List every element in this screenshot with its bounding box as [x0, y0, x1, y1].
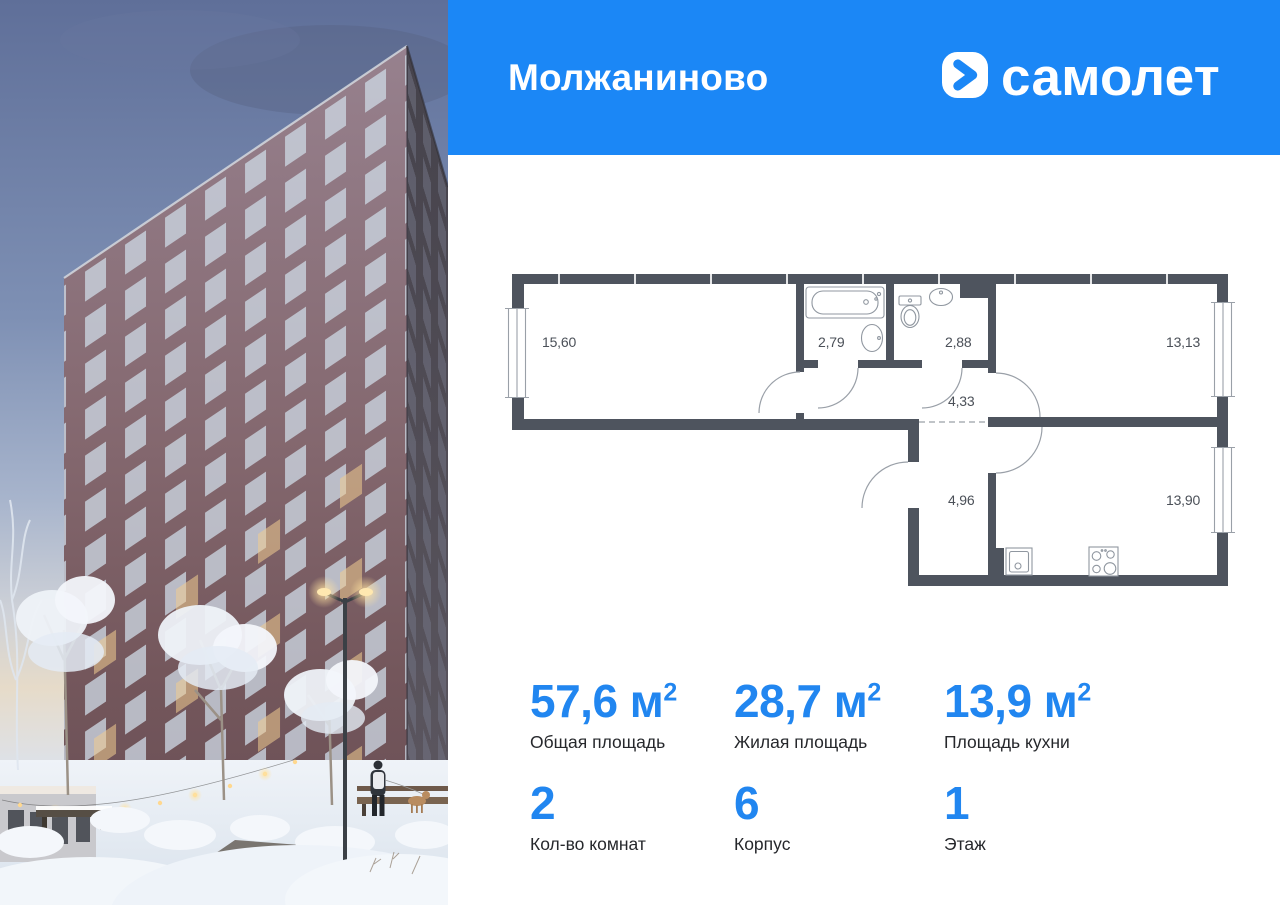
building-photo [0, 0, 448, 905]
stat-kitchen-area: 13,9 м2 Площадь кухни [944, 678, 1144, 753]
stove [1089, 547, 1118, 576]
stat-rooms: 2 Кол-во комнат [530, 780, 730, 855]
bathroom-sink [862, 325, 883, 352]
samolet-logo: самолет [942, 51, 1220, 104]
stat-living-area: 28,7 м2 Жилая площадь [734, 678, 934, 753]
stat-building: 6 Корпус [734, 780, 934, 855]
listing-card: Молжаниново самолет [0, 0, 1280, 905]
stat-rooms-value: 2 [530, 780, 730, 826]
stat-total-area-label: Общая площадь [530, 732, 730, 753]
kitchen-sink [1006, 548, 1032, 575]
building-photo-art [0, 0, 448, 905]
stat-living-area-label: Жилая площадь [734, 732, 934, 753]
header-banner: Молжаниново самолет [448, 0, 1280, 155]
stat-total-area: 57,6 м2 Общая площадь [530, 678, 730, 753]
stat-kitchen-area-label: Площадь кухни [944, 732, 1144, 753]
room-area-bedroom: 13,13 [1166, 334, 1200, 350]
walls [512, 274, 1228, 586]
stat-living-area-value: 28,7 м2 [734, 678, 934, 724]
stat-building-label: Корпус [734, 834, 934, 855]
room-area-kitchen: 13,90 [1166, 492, 1200, 508]
stat-building-value: 6 [734, 780, 934, 826]
samolet-logo-text: самолет [1001, 51, 1220, 104]
room-area-bathroom: 2,79 [818, 334, 845, 350]
bathtub [806, 287, 884, 318]
stat-floor: 1 Этаж [944, 780, 1144, 855]
room-area-living: 15,60 [542, 334, 576, 350]
stat-floor-label: Этаж [944, 834, 1144, 855]
room-area-corridor: 4,96 [948, 492, 975, 508]
project-title: Молжаниново [508, 57, 768, 99]
stat-rooms-label: Кол-во комнат [530, 834, 730, 855]
wc-sink [930, 289, 953, 306]
cloud [60, 10, 300, 70]
room-area-hallway: 4,33 [948, 393, 975, 409]
toilet [899, 296, 921, 328]
stat-kitchen-area-value: 13,9 м2 [944, 678, 1144, 724]
floor-plan: 15,60 2,79 2,88 13,13 4,33 4,96 13,90 [500, 265, 1240, 595]
samolet-chevron-icon [942, 52, 988, 103]
stat-total-area-value: 57,6 м2 [530, 678, 730, 724]
door-arcs [759, 368, 1042, 508]
stat-floor-value: 1 [944, 780, 1144, 826]
room-area-toilet: 2,88 [945, 334, 972, 350]
